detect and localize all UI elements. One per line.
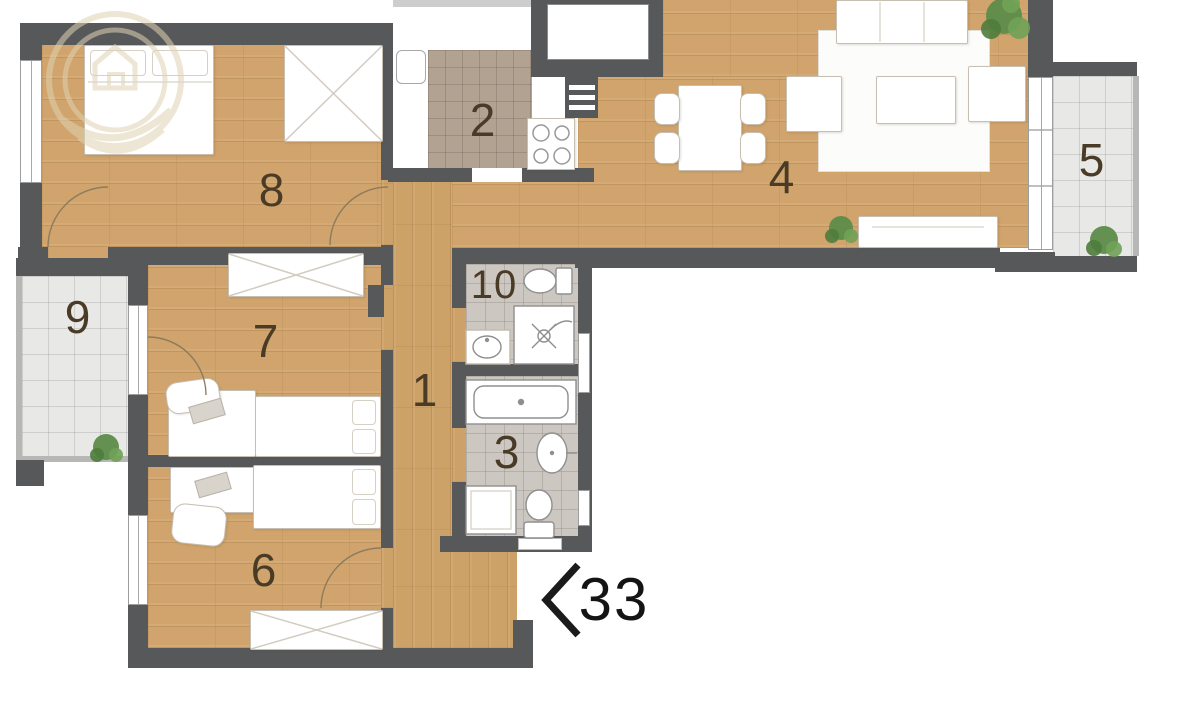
room-label-hallway: 1 bbox=[412, 367, 439, 413]
door-swing-arcs bbox=[48, 187, 388, 608]
unit-number-label: 33 bbox=[579, 570, 650, 630]
room-label-balcony-right: 5 bbox=[1079, 137, 1106, 183]
room-label-bedroom-lower: 6 bbox=[251, 547, 278, 593]
plant bbox=[825, 216, 858, 243]
room-label-living-room: 4 bbox=[769, 154, 796, 200]
plant bbox=[1086, 226, 1122, 257]
room-label-bedroom-middle: 7 bbox=[253, 318, 280, 364]
room-label-bedroom-upper: 8 bbox=[259, 167, 286, 213]
plant bbox=[90, 434, 123, 462]
glass-wall-ticks bbox=[1028, 130, 1053, 186]
room-label-wc: 10 bbox=[471, 265, 518, 305]
room-label-balcony-left: 9 bbox=[65, 294, 92, 340]
room-label-kitchen: 2 bbox=[470, 97, 497, 143]
plant bbox=[981, 0, 1030, 39]
bathroom-fixtures bbox=[466, 380, 577, 538]
floor-plan: 1 2 3 4 5 6 7 8 9 10 33 bbox=[0, 0, 1200, 720]
entrance-arrow-icon bbox=[546, 565, 578, 635]
room-label-bathroom: 3 bbox=[494, 429, 521, 475]
furniture-detail-lines bbox=[88, 2, 984, 227]
stove-burners bbox=[533, 125, 570, 164]
